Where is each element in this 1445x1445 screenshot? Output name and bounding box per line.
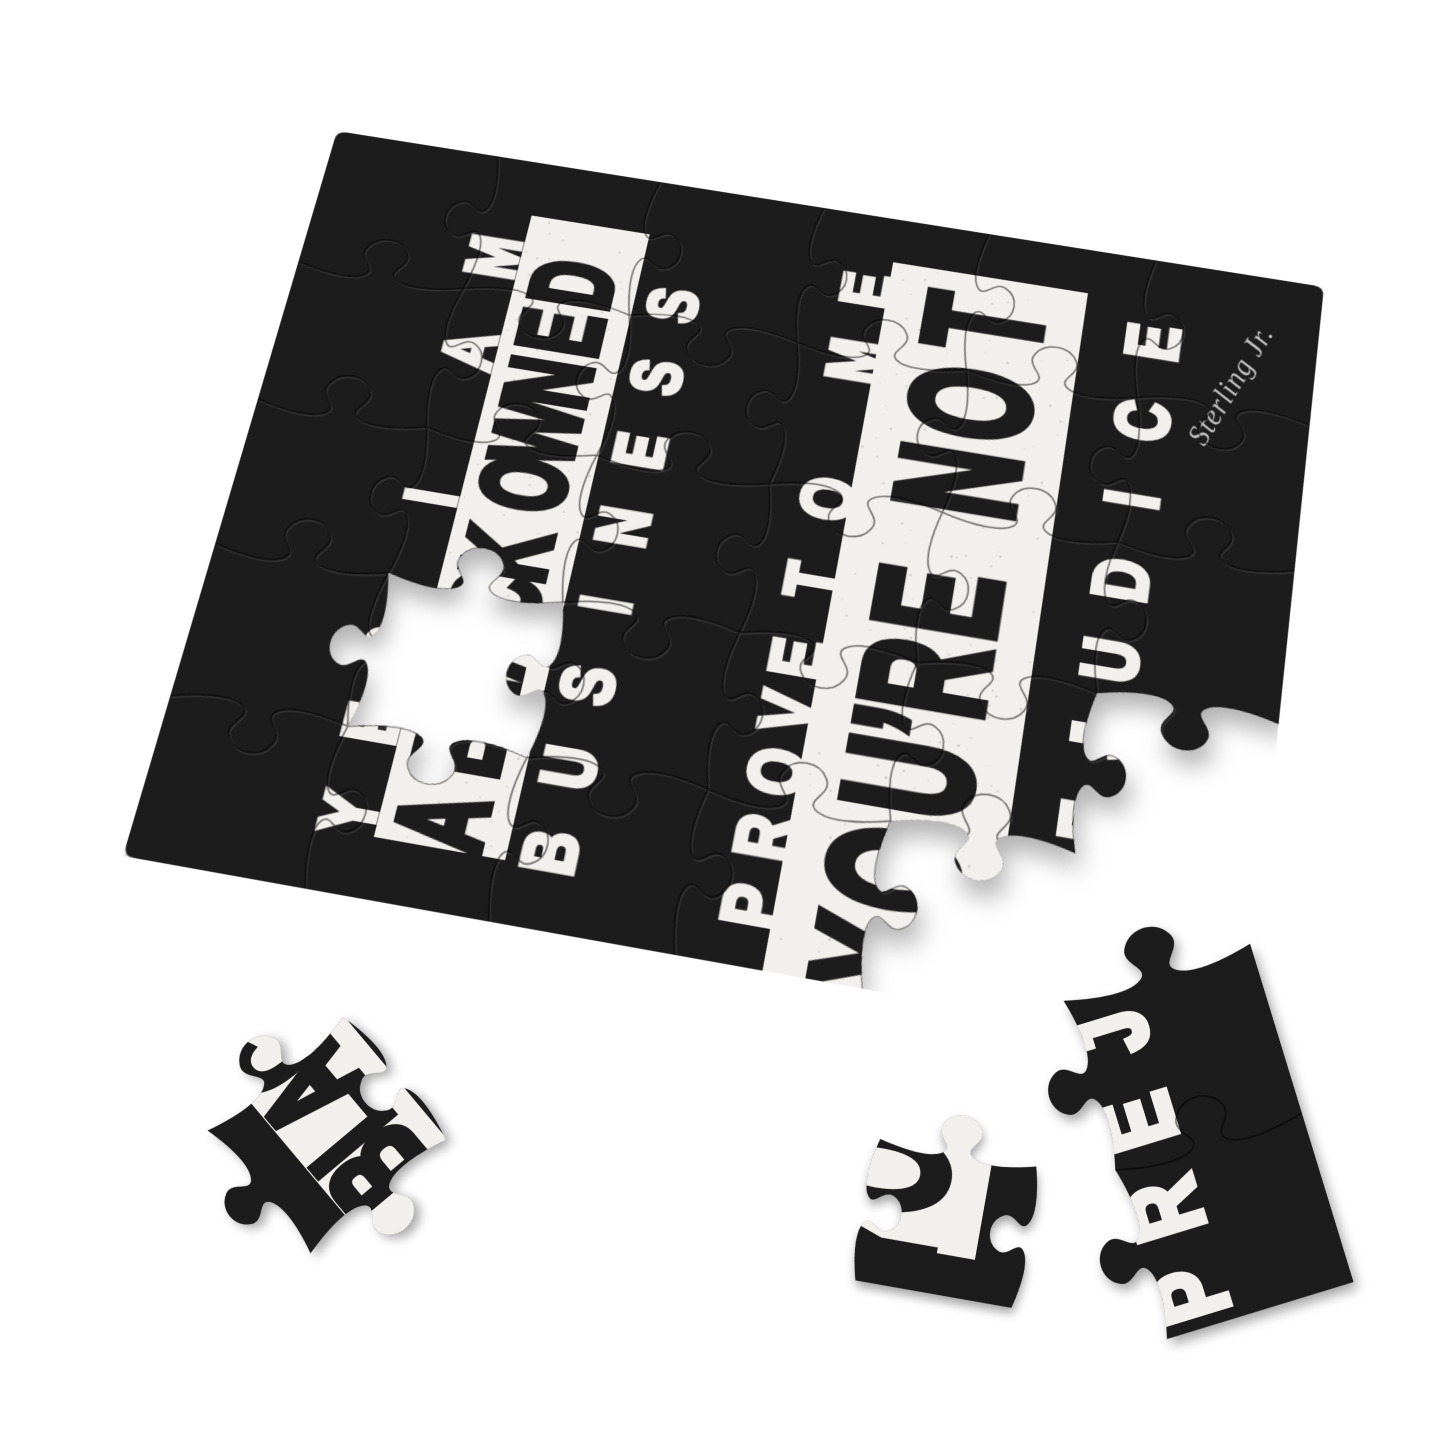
- svg-text:A: A: [411, 611, 556, 685]
- svg-text:Y: Y: [770, 902, 987, 1012]
